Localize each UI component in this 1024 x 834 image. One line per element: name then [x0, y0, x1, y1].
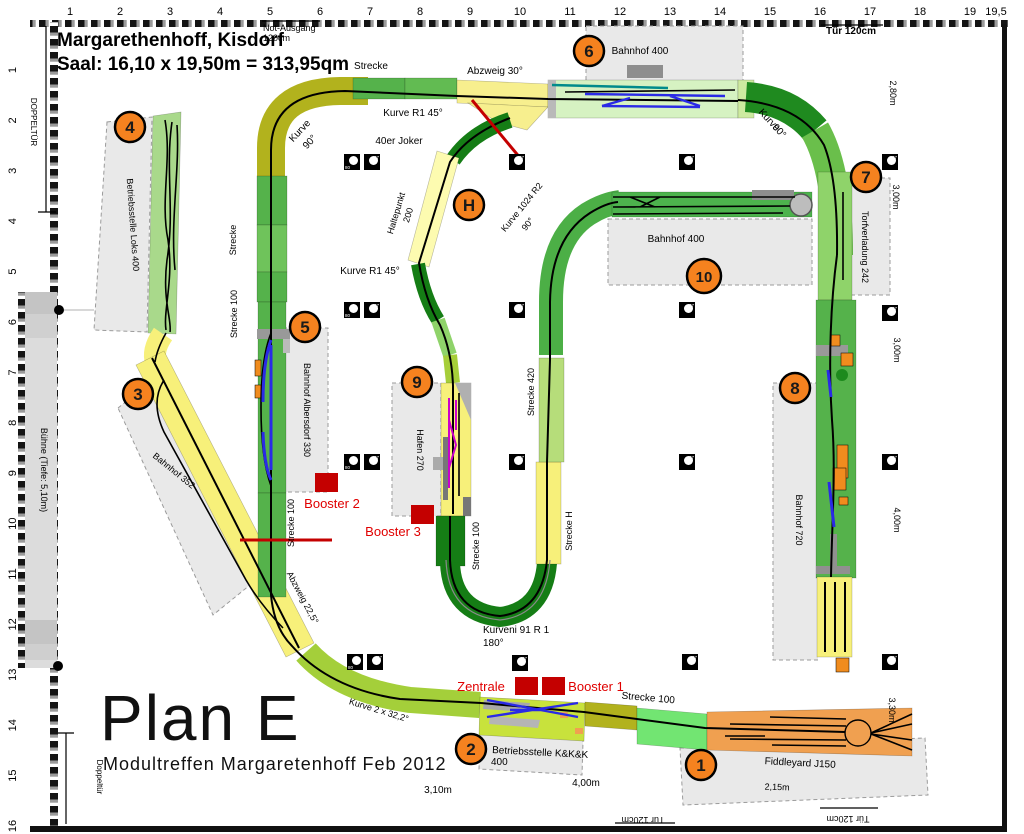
label-tür-120cm: Tür 120cm — [826, 26, 876, 37]
badge-4: 4 — [115, 112, 145, 142]
pillar-marker-number: 37 — [892, 655, 898, 660]
plan-name: Plan E — [100, 682, 301, 754]
ruler-left-tick: 2 — [7, 117, 19, 123]
pillar-marker-icon: 37 — [882, 454, 898, 470]
module-fiddleyard — [707, 708, 912, 756]
badge-9: 9 — [402, 367, 432, 397]
ruler-left-tick: 13 — [7, 669, 19, 681]
booster-3-box — [411, 505, 434, 524]
booster-1-box — [542, 677, 565, 695]
label-90°: 90° — [301, 133, 319, 152]
pillar-marker-icon: 37 — [364, 454, 380, 470]
ruler-left-tick: 6 — [7, 319, 19, 325]
pillar-marker-icon: 80 — [344, 302, 360, 318]
module-loks-400 — [148, 112, 181, 334]
pillar-marker-icon: 37 — [509, 302, 525, 318]
label-booster-1: Booster 1 — [568, 679, 624, 694]
ruler-top-tick: 6 — [317, 6, 323, 18]
label-3,00m: 3,00m — [892, 337, 902, 362]
ruler-left-tick: 16 — [7, 820, 19, 832]
pillar-marker-number: 37 — [892, 155, 898, 160]
wall-right — [1002, 24, 1007, 828]
label-strecke-100: Strecke 100 — [471, 522, 481, 570]
label-kurve-r1-45°: Kurve R1 45° — [340, 266, 400, 277]
stage-step — [25, 292, 57, 314]
hafen-quay-wall — [443, 437, 448, 500]
badge-10: 10 — [687, 259, 721, 293]
building — [831, 335, 840, 346]
label-strecke: Strecke — [228, 225, 238, 256]
ruler-left-tick: 14 — [7, 719, 19, 731]
stage-buehne — [25, 292, 94, 671]
ruler-top-tick: 14 — [714, 6, 726, 18]
pillar-marker-icon: 37 — [512, 655, 528, 671]
pillar-marker-number: 37 — [692, 655, 698, 660]
pillar-marker-icon: 80 — [347, 654, 363, 670]
ruler-top-tick: 7 — [367, 6, 373, 18]
ruler-left-tick: 9 — [7, 470, 19, 476]
ruler-top-tick: 10 — [514, 6, 526, 18]
badge-8: 8 — [780, 373, 810, 403]
label-booster-2: Booster 2 — [304, 496, 360, 511]
ruler-top-tick: 3 — [167, 6, 173, 18]
label-200: 200 — [401, 206, 415, 223]
pillar-marker-icon: 37 — [679, 154, 695, 170]
pillar-marker-number: 37 — [519, 155, 525, 160]
pillar-marker-number: 37 — [377, 655, 383, 660]
label-3,00m: 3,00m — [891, 184, 901, 209]
label-3,30m: 3,30m — [887, 697, 897, 722]
building — [255, 385, 261, 398]
badge-5: 5 — [290, 312, 320, 342]
module-strecke-100-bottom — [637, 708, 707, 750]
module-kurve-180 — [450, 563, 547, 617]
label-2,80m: 2,80m — [888, 80, 898, 105]
label-4,00m: 4,00m — [892, 507, 902, 532]
badge-number: 9 — [412, 373, 421, 392]
pillar-marker-number: 80 — [345, 465, 351, 470]
label-180°: 180° — [483, 638, 504, 649]
badge-number: 2 — [466, 740, 475, 759]
label-strecke: Strecke — [354, 61, 388, 72]
label-40er-joker: 40er Joker — [375, 136, 423, 147]
pillar-marker-number: 37 — [374, 155, 380, 160]
pillar-marker-icon: 37 — [509, 454, 525, 470]
label-kurve-r1-45°: Kurve R1 45° — [383, 108, 443, 119]
module-strecke-420 — [539, 358, 564, 462]
module-strecke-h — [536, 462, 561, 564]
ruler-left-tick: 11 — [7, 568, 19, 579]
pillar-marker-number: 37 — [374, 303, 380, 308]
label-hafen-270: Hafen 270 — [415, 429, 425, 471]
pillar-marker-number: 37 — [892, 455, 898, 460]
badge-number: 6 — [584, 42, 593, 61]
badge-7: 7 — [851, 162, 881, 192]
ruler-top-tick: 2 — [117, 6, 123, 18]
plan-subtitle: Modultreffen Margaretenhoff Feb 2012 — [103, 754, 447, 774]
pillar-marker-icon: 37 — [364, 302, 380, 318]
pillar-marker-number: 37 — [689, 303, 695, 308]
stage-step — [25, 644, 57, 660]
pillar-marker-number: 37 — [519, 303, 525, 308]
pillar-marker-number: 80 — [345, 165, 351, 170]
building — [841, 353, 853, 366]
building — [255, 360, 261, 376]
label-strecke-100: Strecke 100 — [286, 499, 296, 547]
label-abzweig-30°: Abzweig 30° — [467, 66, 523, 77]
ruler-top-tick: 4 — [217, 6, 223, 18]
badge-3: 3 — [123, 379, 153, 409]
badge-1: 1 — [686, 750, 716, 780]
pillar-marker-icon: 37 — [679, 302, 695, 318]
module-haltepunkt-200 — [408, 151, 459, 267]
page-subtitle-dimensions: Saal: 16,10 x 19,50m = 313,95qm — [57, 54, 349, 75]
stage-step — [25, 620, 57, 644]
label-strecke-420: Strecke 420 — [526, 368, 536, 416]
pillar-marker-icon: 37 — [367, 654, 383, 670]
ruler-top-tick: 12 — [614, 6, 626, 18]
badge-H: H — [454, 190, 484, 220]
badge-number: 4 — [125, 118, 135, 137]
pillar-marker-number: 37 — [892, 306, 898, 311]
wall-stage-recess — [18, 292, 26, 668]
pillar-marker-icon: 37 — [882, 305, 898, 321]
ruler-top-tick: 15 — [764, 6, 776, 18]
badge-number: 1 — [696, 756, 705, 775]
ruler-left-tick: 15 — [7, 769, 19, 781]
building — [833, 468, 846, 490]
pillar-marker-icon: 37 — [509, 154, 525, 170]
module-strecke-top — [353, 78, 405, 99]
pillar-marker-number: 37 — [374, 455, 380, 460]
label-tür-120cm: Tür 120cm — [826, 814, 869, 824]
module-kurve-r1-45-upper — [453, 120, 510, 160]
ruler-left-tick: 4 — [7, 218, 19, 224]
fiddleyard-loop — [845, 720, 871, 746]
pillar-marker-number: 37 — [689, 455, 695, 460]
pillar-marker-number: 80 — [345, 313, 351, 318]
hafen-quay-wall — [463, 497, 471, 516]
pillar-marker-icon: 37 — [364, 154, 380, 170]
pillar-marker-icon: 37 — [882, 654, 898, 670]
pillar-marker-icon: 80 — [344, 154, 360, 170]
pillar-marker-icon: 37 — [882, 154, 898, 170]
label-bahnhof-400: Bahnhof 400 — [612, 46, 669, 57]
ruler-left-tick: 3 — [7, 168, 19, 174]
label-90°: 90° — [519, 215, 536, 232]
crane-base — [816, 566, 850, 574]
label-4,00m: 4,00m — [572, 778, 600, 789]
label-kurveni-91-r-1: Kurveni 91 R 1 — [483, 625, 550, 636]
ruler-top-tick: 19,5 — [985, 6, 1006, 18]
pillar-marker-number: 37 — [522, 656, 528, 661]
label-bahnhof-400: Bahnhof 400 — [648, 234, 705, 245]
ruler-left-tick: 12 — [7, 618, 19, 630]
label-zentrale: Zentrale — [457, 679, 505, 694]
badge-2: 2 — [456, 734, 486, 764]
ruler-top-tick: 11 — [564, 6, 575, 18]
building — [836, 658, 849, 672]
ruler-top-tick: 1 — [67, 6, 73, 18]
module-kurve-90-topleft — [271, 91, 368, 190]
ruler-top-tick: 9 — [467, 6, 473, 18]
label-bühne-tiefe-5,10m-: Bühne (Tiefe: 5,10m) — [39, 428, 49, 512]
label-torfverladung-242: Torfverladung 242 — [860, 211, 870, 283]
box-betriebsstelle-loks — [94, 117, 152, 332]
ruler-left-tick: 8 — [7, 420, 19, 426]
label-2,15m: 2,15m — [764, 782, 789, 793]
building — [839, 497, 848, 505]
pillar-marker-icon: 80 — [344, 454, 360, 470]
badge-number: H — [463, 196, 475, 215]
wall-bottom — [30, 826, 1007, 832]
zentrale-box — [515, 677, 538, 695]
pillar-marker-number: 37 — [689, 155, 695, 160]
tree — [836, 369, 848, 381]
page-title: Margarethenhoff, Kisdorf — [57, 30, 285, 51]
platform-albersdorf — [283, 339, 290, 353]
stage-corner-dot — [54, 305, 64, 315]
label-strecke-h: Strecke H — [564, 511, 574, 551]
door-bracket-doppeltuer-bottom — [58, 733, 74, 824]
ruler-top-tick: 16 — [814, 6, 826, 18]
ruler-top-tick: 19 — [964, 6, 976, 18]
ruler-left-tick: 10 — [7, 517, 19, 529]
ruler-left-tick: 5 — [7, 269, 19, 275]
badge-6: 6 — [574, 36, 604, 66]
platform-bahnhof-400-top — [627, 65, 663, 78]
title-block: Margarethenhoff, Kisdorf Saal: 16,10 x 1… — [57, 30, 349, 75]
label-strecke-100: Strecke 100 — [229, 290, 239, 338]
booster-2-box — [315, 473, 338, 492]
ruler-top-tick: 8 — [417, 6, 423, 18]
ruler-left-tick: 7 — [7, 369, 19, 375]
ruler-top-tick: 18 — [914, 6, 926, 18]
road-crossing — [257, 329, 290, 339]
track-plan-svg: 1234567891011121314151617181919,51234567… — [0, 0, 1024, 834]
pillar-marker-icon: 37 — [679, 454, 695, 470]
label-bahnhof-720: Bahnhof 720 — [794, 494, 804, 545]
module-number-badges: 12345678910H — [115, 36, 881, 780]
ruler-left-tick: 1 — [7, 67, 19, 73]
badge-number: 3 — [133, 385, 142, 404]
track-plan-canvas: 1234567891011121314151617181919,51234567… — [0, 0, 1024, 834]
ruler-top-tick: 13 — [664, 6, 676, 18]
ruler-top-tick: 17 — [864, 6, 876, 18]
badge-number: 10 — [696, 269, 713, 286]
platform-bahnhof-400-mid — [752, 190, 794, 200]
label-bahnhof-albersdorf-330: Bahnhof Albersdorf 330 — [302, 363, 312, 457]
badge-number: 8 — [790, 379, 799, 398]
label-booster-3: Booster 3 — [365, 524, 421, 539]
pillar-marker-icon: 37 — [682, 654, 698, 670]
stage-step — [25, 314, 57, 338]
label-strecke-100: Strecke 100 — [621, 691, 676, 707]
badge-number: 7 — [861, 168, 870, 187]
label-400: 400 — [491, 757, 508, 768]
label-doppeltür: DOPPELTÜR — [29, 98, 38, 147]
label-3,10m: 3,10m — [424, 785, 452, 796]
label-tür-120cm: Tür 120cm — [621, 815, 664, 825]
kkk-detail — [575, 728, 583, 734]
pillar-marker-number: 37 — [519, 455, 525, 460]
pillar-marker-number: 80 — [348, 665, 354, 670]
hafen-shed — [433, 457, 443, 470]
ruler-top-tick: 5 — [267, 6, 273, 18]
stage-corner-dot — [53, 661, 63, 671]
badge-number: 5 — [300, 318, 309, 337]
